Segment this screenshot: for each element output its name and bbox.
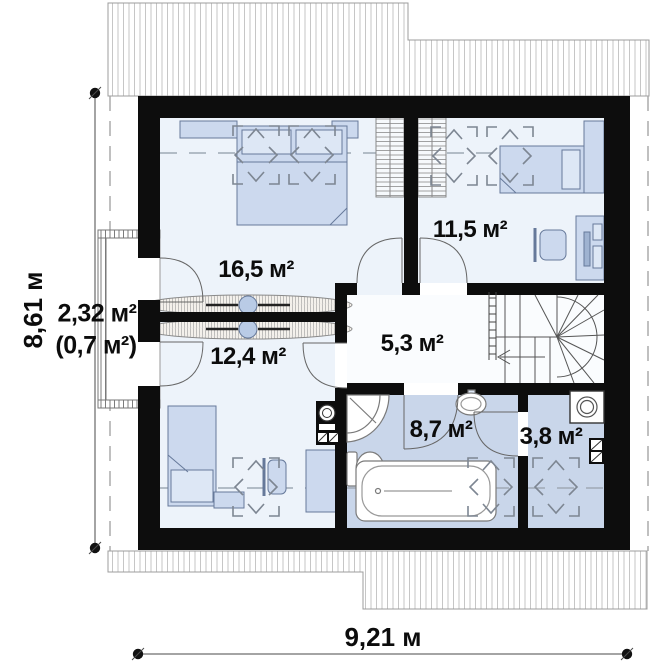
- dimension-height: 8,61 м: [20, 271, 46, 348]
- dimension-width: 9,21 м: [344, 624, 421, 650]
- roof-overhang-bottom: [108, 551, 647, 609]
- desk-icon: [306, 450, 336, 512]
- flue-block-icon: [589, 438, 604, 464]
- room-area-bedroom1: 16,5 м²: [218, 258, 294, 282]
- roof-overhang-top: [108, 3, 649, 96]
- room-area-bedroom3: 12,4 м²: [210, 345, 286, 369]
- single-bed-icon: [168, 406, 216, 506]
- room-area-balcony-note: (0,7 м²): [55, 334, 136, 359]
- shelf-icon: [180, 121, 237, 138]
- floor-plan-canvas: 16,5 м² 11,5 м² 2,32 м² (0,7 м²) 12,4 м²…: [0, 0, 655, 667]
- washing-machine-icon: [570, 391, 604, 423]
- room-area-balcony: 2,32 м²: [58, 302, 137, 327]
- room-area-bathroom: 8,7 м²: [410, 418, 473, 442]
- flue-block-icon: [316, 401, 338, 445]
- room-area-laundry: 3,8 м²: [520, 425, 583, 449]
- double-bed-icon: [237, 126, 347, 225]
- room-area-bedroom2: 11,5 м²: [433, 218, 507, 242]
- side-table-icon: [214, 492, 244, 508]
- desk-icon: [576, 216, 604, 280]
- room-area-hall: 5,3 м²: [381, 332, 444, 356]
